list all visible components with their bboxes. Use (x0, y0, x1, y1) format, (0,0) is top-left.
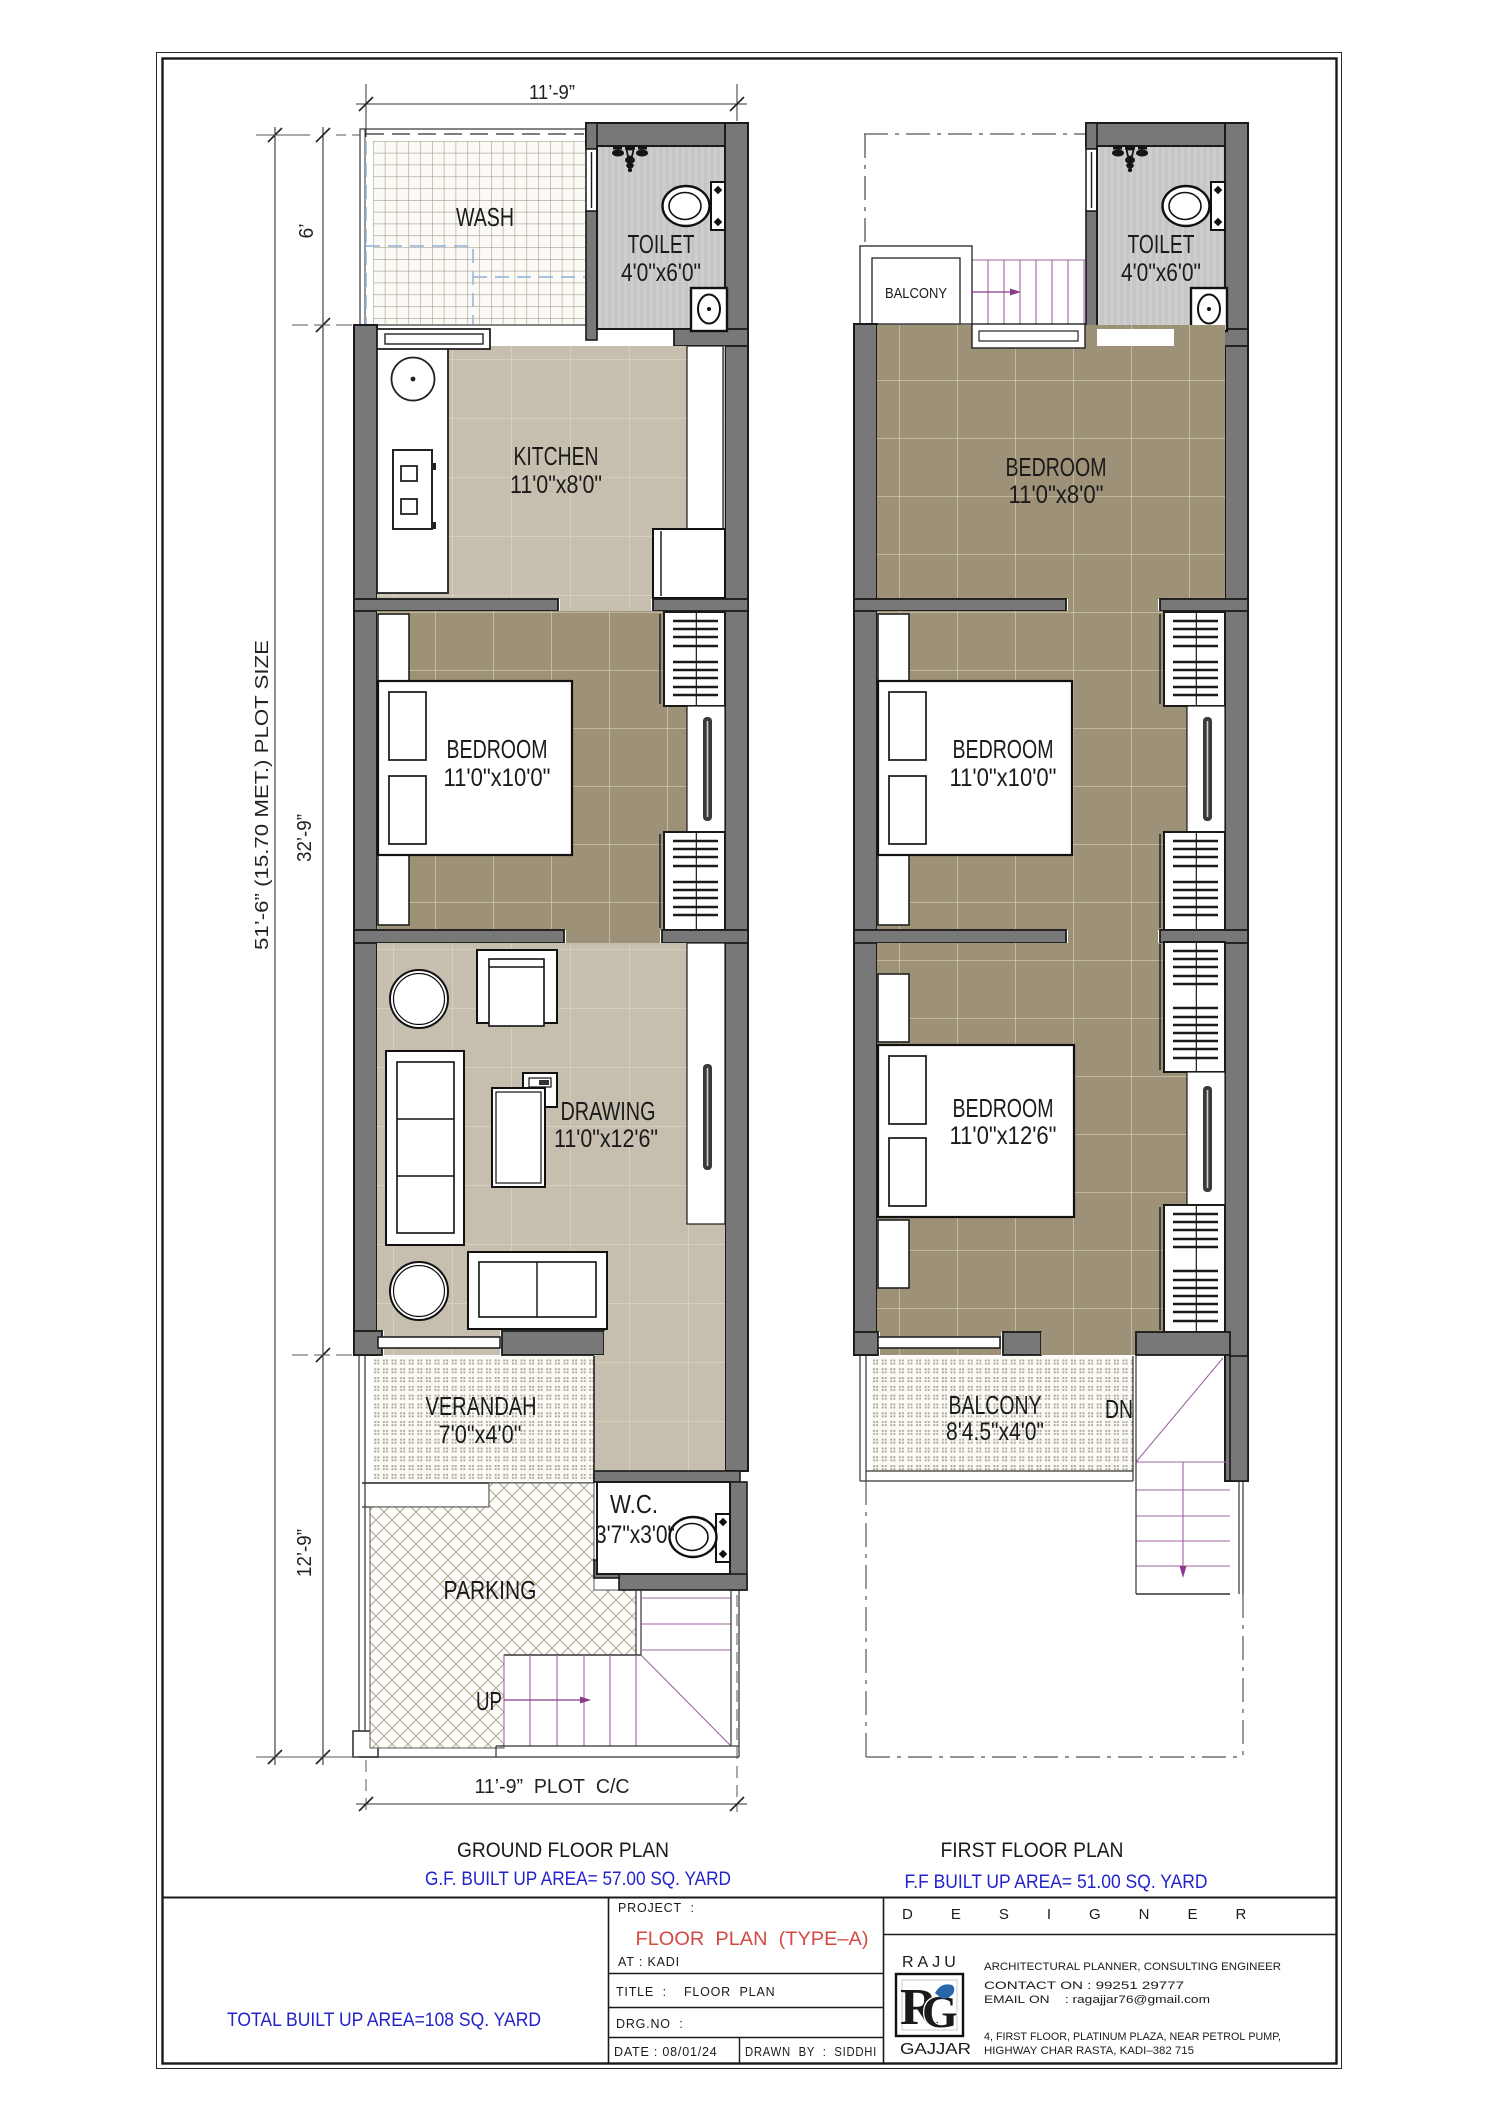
svg-text:BEDROOM: BEDROOM (447, 734, 548, 764)
svg-text:G.F. BUILT UP AREA= 57.00 SQ.: G.F. BUILT UP AREA= 57.00 SQ. YARD (425, 1869, 731, 1890)
svg-text:F.F BUILT UP AREA= 51.00 SQ. Y: F.F BUILT UP AREA= 51.00 SQ. YARD (905, 1872, 1208, 1893)
svg-text:TOILET: TOILET (1128, 229, 1195, 259)
svg-text:TOILET: TOILET (628, 229, 695, 259)
svg-text:4'0"x6'0": 4'0"x6'0" (1121, 259, 1201, 287)
svg-text:ARCHITECTURAL PLANNER, CONSULT: ARCHITECTURAL PLANNER, CONSULTING ENGINE… (984, 1961, 1281, 1973)
svg-text:EMAIL ON : ragajjar76@gmail: EMAIL ON : ragajjar76@gmail.com (984, 1994, 1210, 2006)
svg-text:PARKING: PARKING (444, 1575, 537, 1605)
svg-text:3'7"x3'0": 3'7"x3'0" (595, 1521, 675, 1549)
svg-text:BEDROOM: BEDROOM (953, 734, 1054, 764)
svg-text:DRAWN BY : SIDDHI: DRAWN BY : SIDDHI (745, 2045, 877, 2059)
svg-text:11'0"x12'6": 11'0"x12'6" (554, 1125, 658, 1153)
svg-text:FLOOR PLAN (TYPE–A): FLOOR PLAN (TYPE–A) (636, 1929, 869, 1950)
svg-text:32’-9”: 32’-9” (294, 814, 316, 862)
svg-text:4'0"x6'0": 4'0"x6'0" (621, 259, 701, 287)
svg-text:8'4.5"x4'0": 8'4.5"x4'0" (946, 1418, 1044, 1446)
svg-text:KITCHEN: KITCHEN (514, 441, 599, 471)
svg-text:WASH: WASH (456, 202, 514, 232)
svg-text:FIRST FLOOR PLAN: FIRST FLOOR PLAN (941, 1839, 1124, 1862)
svg-text:12’-9”: 12’-9” (294, 1529, 316, 1577)
svg-text:GROUND FLOOR PLAN: GROUND FLOOR PLAN (457, 1839, 669, 1862)
svg-text:HIGHWAY CHAR RASTA, KADI–382 7: HIGHWAY CHAR RASTA, KADI–382 715 (984, 2045, 1194, 2057)
svg-text:11’-9”: 11’-9” (529, 82, 575, 104)
svg-text:51’-6” (15.70 MET.) PLOT SIZE: 51’-6” (15.70 MET.) PLOT SIZE (252, 640, 272, 950)
svg-text:CONTACT ON : 99251 29777: CONTACT ON : 99251 29777 (984, 1980, 1184, 1992)
svg-text:AT : KADI: AT : KADI (618, 1955, 680, 1969)
svg-text:11'0"x8'0": 11'0"x8'0" (510, 471, 602, 499)
svg-text:11'0"x8'0": 11'0"x8'0" (1009, 481, 1104, 509)
svg-text:GAJJAR: GAJJAR (900, 2041, 971, 2058)
svg-text:PROJECT :: PROJECT : (618, 1901, 695, 1915)
svg-text:DATE : 08/01/24: DATE : 08/01/24 (614, 2045, 718, 2059)
svg-text:BEDROOM: BEDROOM (1006, 452, 1107, 482)
svg-text:DN: DN (1105, 1394, 1133, 1424)
svg-text:11'0"x10'0": 11'0"x10'0" (444, 764, 551, 792)
svg-text:11'0"x12'6": 11'0"x12'6" (950, 1122, 1057, 1150)
svg-text:BALCONY: BALCONY (885, 285, 947, 302)
svg-text:W.C.: W.C. (610, 1489, 658, 1519)
svg-text:RAJU: RAJU (902, 1954, 960, 1971)
svg-text:TITLE : FLOOR PLAN: TITLE : FLOOR PLAN (616, 1985, 775, 1999)
svg-text:4, FIRST FLOOR, PLATINUM PLAZA: 4, FIRST FLOOR, PLATINUM PLAZA, NEAR PET… (984, 2031, 1281, 2043)
svg-text:7'0"x4'0": 7'0"x4'0" (439, 1421, 522, 1449)
svg-text:6’: 6’ (296, 224, 318, 239)
svg-text:BALCONY: BALCONY (949, 1390, 1042, 1420)
svg-text:DESIGNER: DESIGNER (902, 1906, 1284, 1923)
svg-text:DRAWING: DRAWING (561, 1096, 656, 1126)
svg-text:VERANDAH: VERANDAH (426, 1391, 537, 1421)
svg-text:DRG.NO :: DRG.NO : (616, 2017, 684, 2031)
svg-text:11'0"x10'0": 11'0"x10'0" (950, 764, 1057, 792)
svg-text:11’-9” PLOT C/C: 11’-9” PLOT C/C (475, 1776, 630, 1798)
svg-text:BEDROOM: BEDROOM (953, 1093, 1054, 1123)
svg-text:UP: UP (476, 1686, 502, 1716)
svg-text:TOTAL BUILT UP AREA=108 SQ. YA: TOTAL BUILT UP AREA=108 SQ. YARD (227, 2009, 541, 2031)
